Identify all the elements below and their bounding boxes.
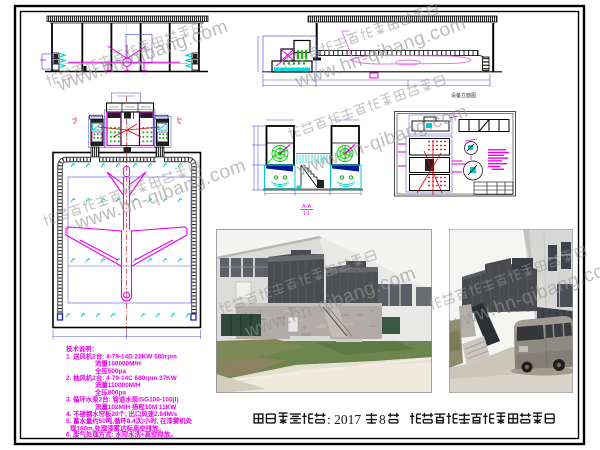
svg-text:全压800pa: 全压800pa [94, 387, 126, 396]
svg-text:4. 不锈钢水帘板20个, 出口风速2.84M/s: 4. 不锈钢水帘板20个, 出口风速2.84M/s [66, 409, 178, 418]
svg-text:设备立面图: 设备立面图 [451, 92, 476, 99]
svg-text:流量110000M/H: 流量110000M/H [95, 380, 141, 389]
svg-text:1. 送风机2台: 4-79-14D 22KW 580r: 1. 送风机2台: 4-79-14D 22KW 580rpm [66, 351, 177, 360]
svg-text:6. 废气处理方式: 水帘水洗+高空排放。: 6. 废气处理方式: 水帘水洗+高空排放。 [66, 430, 177, 439]
svg-text:流量100000M/H: 流量100000M/H [95, 359, 141, 368]
svg-text:1:1: 1:1 [303, 211, 310, 217]
svg-text:流量102M/H 扬程10M 11KW: 流量102M/H 扬程10M 11KW [95, 402, 177, 411]
svg-text:3. 循环水泵2台: 管道水泵ISG100-100(I): 3. 循环水泵2台: 管道水泵ISG100-100(I) [66, 395, 179, 404]
svg-text:全压500pa: 全压500pa [94, 366, 126, 375]
svg-text:2. 抽风机2台: 4-79-14C 680rpm 37KW: 2. 抽风机2台: 4-79-14C 680rpm 37KW [66, 373, 178, 382]
svg-text:5. 蓄水量约50吨,循环8.4次/小时, 在漆雾机处: 5. 蓄水量约50吨,循环8.4次/小时, 在漆雾机处 [66, 416, 193, 425]
svg-text:技术说明：: 技术说明： [66, 344, 98, 353]
